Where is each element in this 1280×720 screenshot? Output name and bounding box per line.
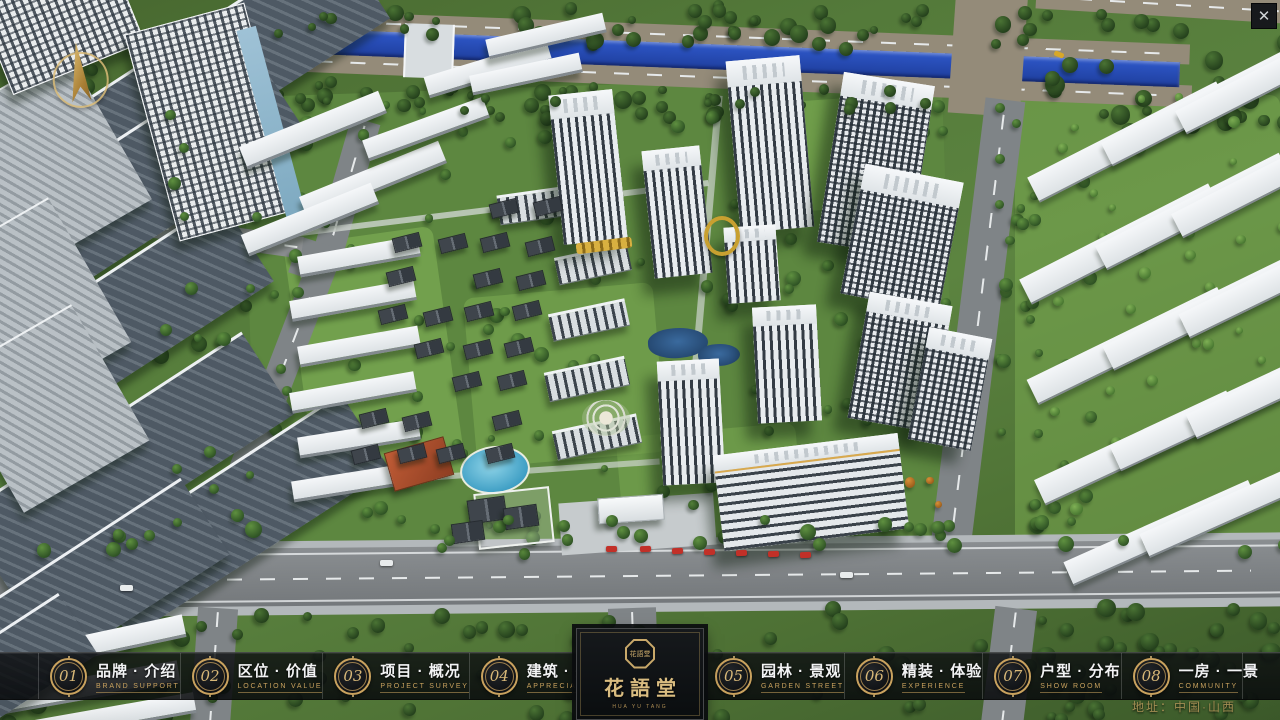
tree [1065, 702, 1076, 713]
nav-number-medallion: 01 [50, 658, 87, 695]
tree [914, 523, 927, 536]
nav-item-subtitle: BRAND SUPPORT [96, 683, 180, 693]
tree [920, 98, 931, 109]
tree [440, 169, 451, 180]
nav-number-medallion: 05 [715, 658, 752, 695]
tree [106, 542, 121, 557]
nav-item-subtitle: EXPERIENCE [902, 683, 965, 693]
nav-item-project[interactable]: 03 项目 · 概况 PROJECT SURVEY [322, 653, 468, 699]
tree [729, 28, 741, 40]
nav-item-title: 一房 · 一景 [1179, 660, 1259, 681]
tree [404, 12, 414, 22]
tree [476, 621, 488, 633]
tree [714, 709, 730, 720]
tree [735, 99, 745, 109]
accent [800, 552, 811, 558]
tree [144, 530, 155, 541]
nav-item-subtitle: GARDEN STREET [761, 683, 844, 693]
tree [362, 507, 373, 518]
nav-group-left: 01 品牌 · 介绍 BRAND SUPPORT 02 区位 · 价值 LOCA… [38, 653, 579, 699]
tree [724, 11, 737, 24]
tree [1097, 599, 1115, 617]
tree [1060, 623, 1074, 637]
nav-item-subtitle: LOCATION VALUE [238, 683, 323, 693]
tree [932, 100, 945, 113]
tree [824, 405, 833, 414]
accent [840, 572, 853, 578]
tree [822, 260, 834, 272]
tree [931, 521, 945, 535]
nav-number-medallion: 06 [856, 658, 893, 695]
project-logo-subtitle: HUA YU TANG [612, 704, 667, 710]
tree [505, 137, 516, 148]
tree [550, 96, 561, 107]
tree [812, 37, 826, 51]
tree [1070, 503, 1083, 516]
nav-item-brand[interactable]: 01 品牌 · 介绍 BRAND SUPPORT [38, 653, 180, 699]
tree [813, 538, 826, 551]
tree [430, 524, 440, 534]
tree [426, 28, 439, 41]
tree [800, 524, 816, 540]
tree [911, 16, 922, 27]
tree [1118, 535, 1129, 546]
tree [1035, 515, 1050, 530]
tree [1236, 235, 1246, 245]
accent [672, 548, 683, 554]
tree [760, 515, 770, 525]
accent [380, 560, 393, 566]
tree [713, 4, 726, 17]
tree [1099, 59, 1114, 74]
tree [179, 143, 189, 153]
tree [785, 233, 797, 245]
tree [1250, 612, 1267, 629]
tree [1085, 411, 1097, 423]
project-address-label: 地址：中国·山西 [1132, 698, 1236, 715]
tree [1042, 10, 1053, 21]
tree [1192, 338, 1202, 348]
nav-item-subtitle: COMMUNITY [1179, 683, 1238, 693]
close-button[interactable]: ✕ [1251, 3, 1277, 29]
tree [1203, 338, 1215, 350]
tree [614, 91, 632, 109]
tree [844, 104, 855, 115]
tree [1134, 14, 1149, 29]
tree [698, 15, 712, 29]
tree [693, 536, 707, 550]
nav-item-title: 户型 · 分布 [1040, 660, 1120, 681]
tree [1050, 407, 1060, 417]
tree [1090, 189, 1098, 197]
tree [1127, 603, 1145, 621]
tree [292, 287, 304, 299]
tree [704, 99, 712, 107]
tree [820, 17, 837, 34]
tree [559, 711, 575, 720]
tree [172, 464, 182, 474]
tree [1017, 34, 1029, 46]
tree [1126, 304, 1136, 314]
tree [1268, 622, 1280, 634]
tree [602, 615, 616, 629]
nav-number-medallion: 08 [1133, 658, 1170, 695]
tree [1093, 709, 1105, 720]
project-seal-icon: 花語堂 [625, 639, 655, 669]
tree [558, 520, 570, 532]
accent [606, 546, 617, 552]
tree [935, 501, 942, 508]
tree [196, 621, 207, 632]
tree [832, 613, 849, 630]
tree [516, 624, 528, 636]
tree [634, 529, 648, 543]
tree [884, 85, 896, 97]
nav-number-medallion: 07 [994, 658, 1031, 695]
tree [1138, 95, 1145, 102]
tree [231, 509, 244, 522]
nav-item-garden[interactable]: 05 园林 · 景观 GARDEN STREET [703, 653, 844, 699]
nav-number-medallion: 03 [334, 658, 371, 695]
tree [998, 428, 1006, 436]
tree [500, 307, 510, 317]
tree [204, 446, 216, 458]
nav-item-subtitle: SHOW ROOM [1040, 683, 1102, 693]
tree [1058, 536, 1074, 552]
tree [819, 84, 830, 95]
tree [901, 13, 911, 23]
tree [414, 315, 425, 326]
tree [974, 639, 988, 653]
tree [995, 16, 1012, 33]
tree [656, 101, 668, 113]
nav-item-interior[interactable]: 06 精装 · 体验 EXPERIENCE [844, 653, 982, 699]
tree [325, 76, 337, 88]
compass-north-icon [47, 37, 112, 109]
tree [565, 2, 578, 15]
tree [1012, 119, 1021, 128]
building [582, 400, 630, 436]
tree [1034, 429, 1043, 438]
tree [997, 354, 1011, 368]
tree [617, 526, 630, 539]
tree [688, 500, 699, 511]
tree [165, 110, 176, 121]
tree [371, 618, 386, 633]
tree [412, 391, 423, 402]
tree [857, 29, 869, 41]
tree [254, 608, 269, 623]
tree [419, 107, 427, 115]
app-window: ✕ 01 品牌 · 介绍 BRAND SUPPORT 02 区位 · 价值 LO… [0, 0, 1280, 720]
nav-item-view[interactable]: 08 一房 · 一景 COMMUNITY [1121, 653, 1259, 699]
tree [1236, 327, 1243, 334]
tree [303, 612, 312, 621]
tree [790, 25, 808, 43]
accent [704, 216, 740, 256]
tree [1017, 218, 1028, 229]
accent [120, 585, 133, 591]
tree [434, 608, 450, 624]
project-logo-title: 花語堂 [598, 672, 682, 701]
tree [534, 430, 544, 440]
tree [1099, 636, 1113, 650]
tree [1111, 105, 1131, 125]
tree [498, 621, 515, 638]
tree [1106, 386, 1115, 395]
tree [764, 29, 781, 46]
tree [347, 627, 359, 639]
tree [1038, 616, 1047, 625]
tree [400, 24, 409, 33]
tree [904, 522, 914, 532]
tree [764, 632, 777, 645]
tree [1227, 603, 1240, 616]
tree [1030, 499, 1041, 510]
tree [995, 103, 1005, 113]
tree [562, 534, 574, 546]
tree [1062, 57, 1078, 73]
tree [1185, 250, 1196, 261]
tree [682, 35, 695, 48]
nav-group-right: 05 园林 · 景观 GARDEN STREET 06 精装 · 体验 EXPE… [703, 653, 1243, 699]
nav-item-location[interactable]: 02 区位 · 价值 LOCATION VALUE [180, 653, 323, 699]
project-logo-panel[interactable]: 花語堂 花語堂 HUA YU TANG [576, 628, 704, 720]
tree [397, 515, 406, 524]
tree [403, 703, 416, 716]
tree [1079, 489, 1093, 503]
tree [168, 177, 181, 190]
tree [1258, 356, 1266, 364]
tree [160, 324, 172, 336]
tree [1173, 23, 1189, 39]
tree [1205, 51, 1224, 70]
tree [1058, 143, 1068, 153]
tree [529, 705, 545, 720]
tree [397, 99, 411, 113]
masterplan-3d-render[interactable] [0, 0, 1280, 720]
tree [245, 521, 262, 538]
tree [246, 284, 255, 293]
accent [736, 550, 747, 556]
tree [185, 282, 198, 295]
tree [1018, 6, 1032, 20]
tree [632, 91, 646, 105]
tree [635, 107, 648, 120]
tree [519, 548, 531, 560]
tree [437, 543, 447, 553]
nav-item-title: 品牌 · 介绍 [96, 660, 180, 681]
nav-item-title: 项目 · 概况 [380, 660, 468, 681]
tree [463, 625, 477, 639]
tree [926, 477, 934, 485]
tree [276, 364, 286, 374]
residential-tower [726, 55, 815, 233]
nav-item-title: 区位 · 价值 [238, 660, 323, 681]
tree [1071, 124, 1078, 131]
tree [232, 629, 243, 640]
tree [916, 4, 929, 17]
tree [1258, 115, 1270, 127]
tree [1101, 18, 1115, 32]
tree [1147, 375, 1158, 386]
tree [387, 5, 403, 21]
nav-item-floorplan[interactable]: 07 户型 · 分布 SHOW ROOM [982, 653, 1120, 699]
accent [640, 546, 651, 552]
tree [947, 538, 962, 553]
tree [274, 29, 283, 38]
tree [1055, 713, 1068, 720]
tree [885, 102, 896, 113]
tree [1005, 236, 1015, 246]
nav-item-subtitle: PROJECT SURVEY [380, 683, 468, 693]
nav-item-title: 园林 · 景观 [761, 660, 844, 681]
tree [425, 214, 434, 223]
tree [534, 347, 549, 362]
tree [113, 529, 124, 540]
tree [1210, 624, 1224, 638]
accent [768, 551, 779, 557]
tree [432, 17, 440, 25]
accent [704, 549, 715, 555]
tree [878, 517, 893, 532]
tree [348, 359, 360, 371]
nav-number-medallion: 02 [192, 658, 229, 695]
tree [938, 126, 948, 136]
tree [628, 16, 636, 24]
tree [1141, 633, 1159, 651]
nav-number-medallion: 04 [481, 658, 518, 695]
tree [1029, 214, 1040, 225]
nav-item-title: 精装 · 体验 [902, 660, 982, 681]
residential-tower [752, 304, 822, 423]
